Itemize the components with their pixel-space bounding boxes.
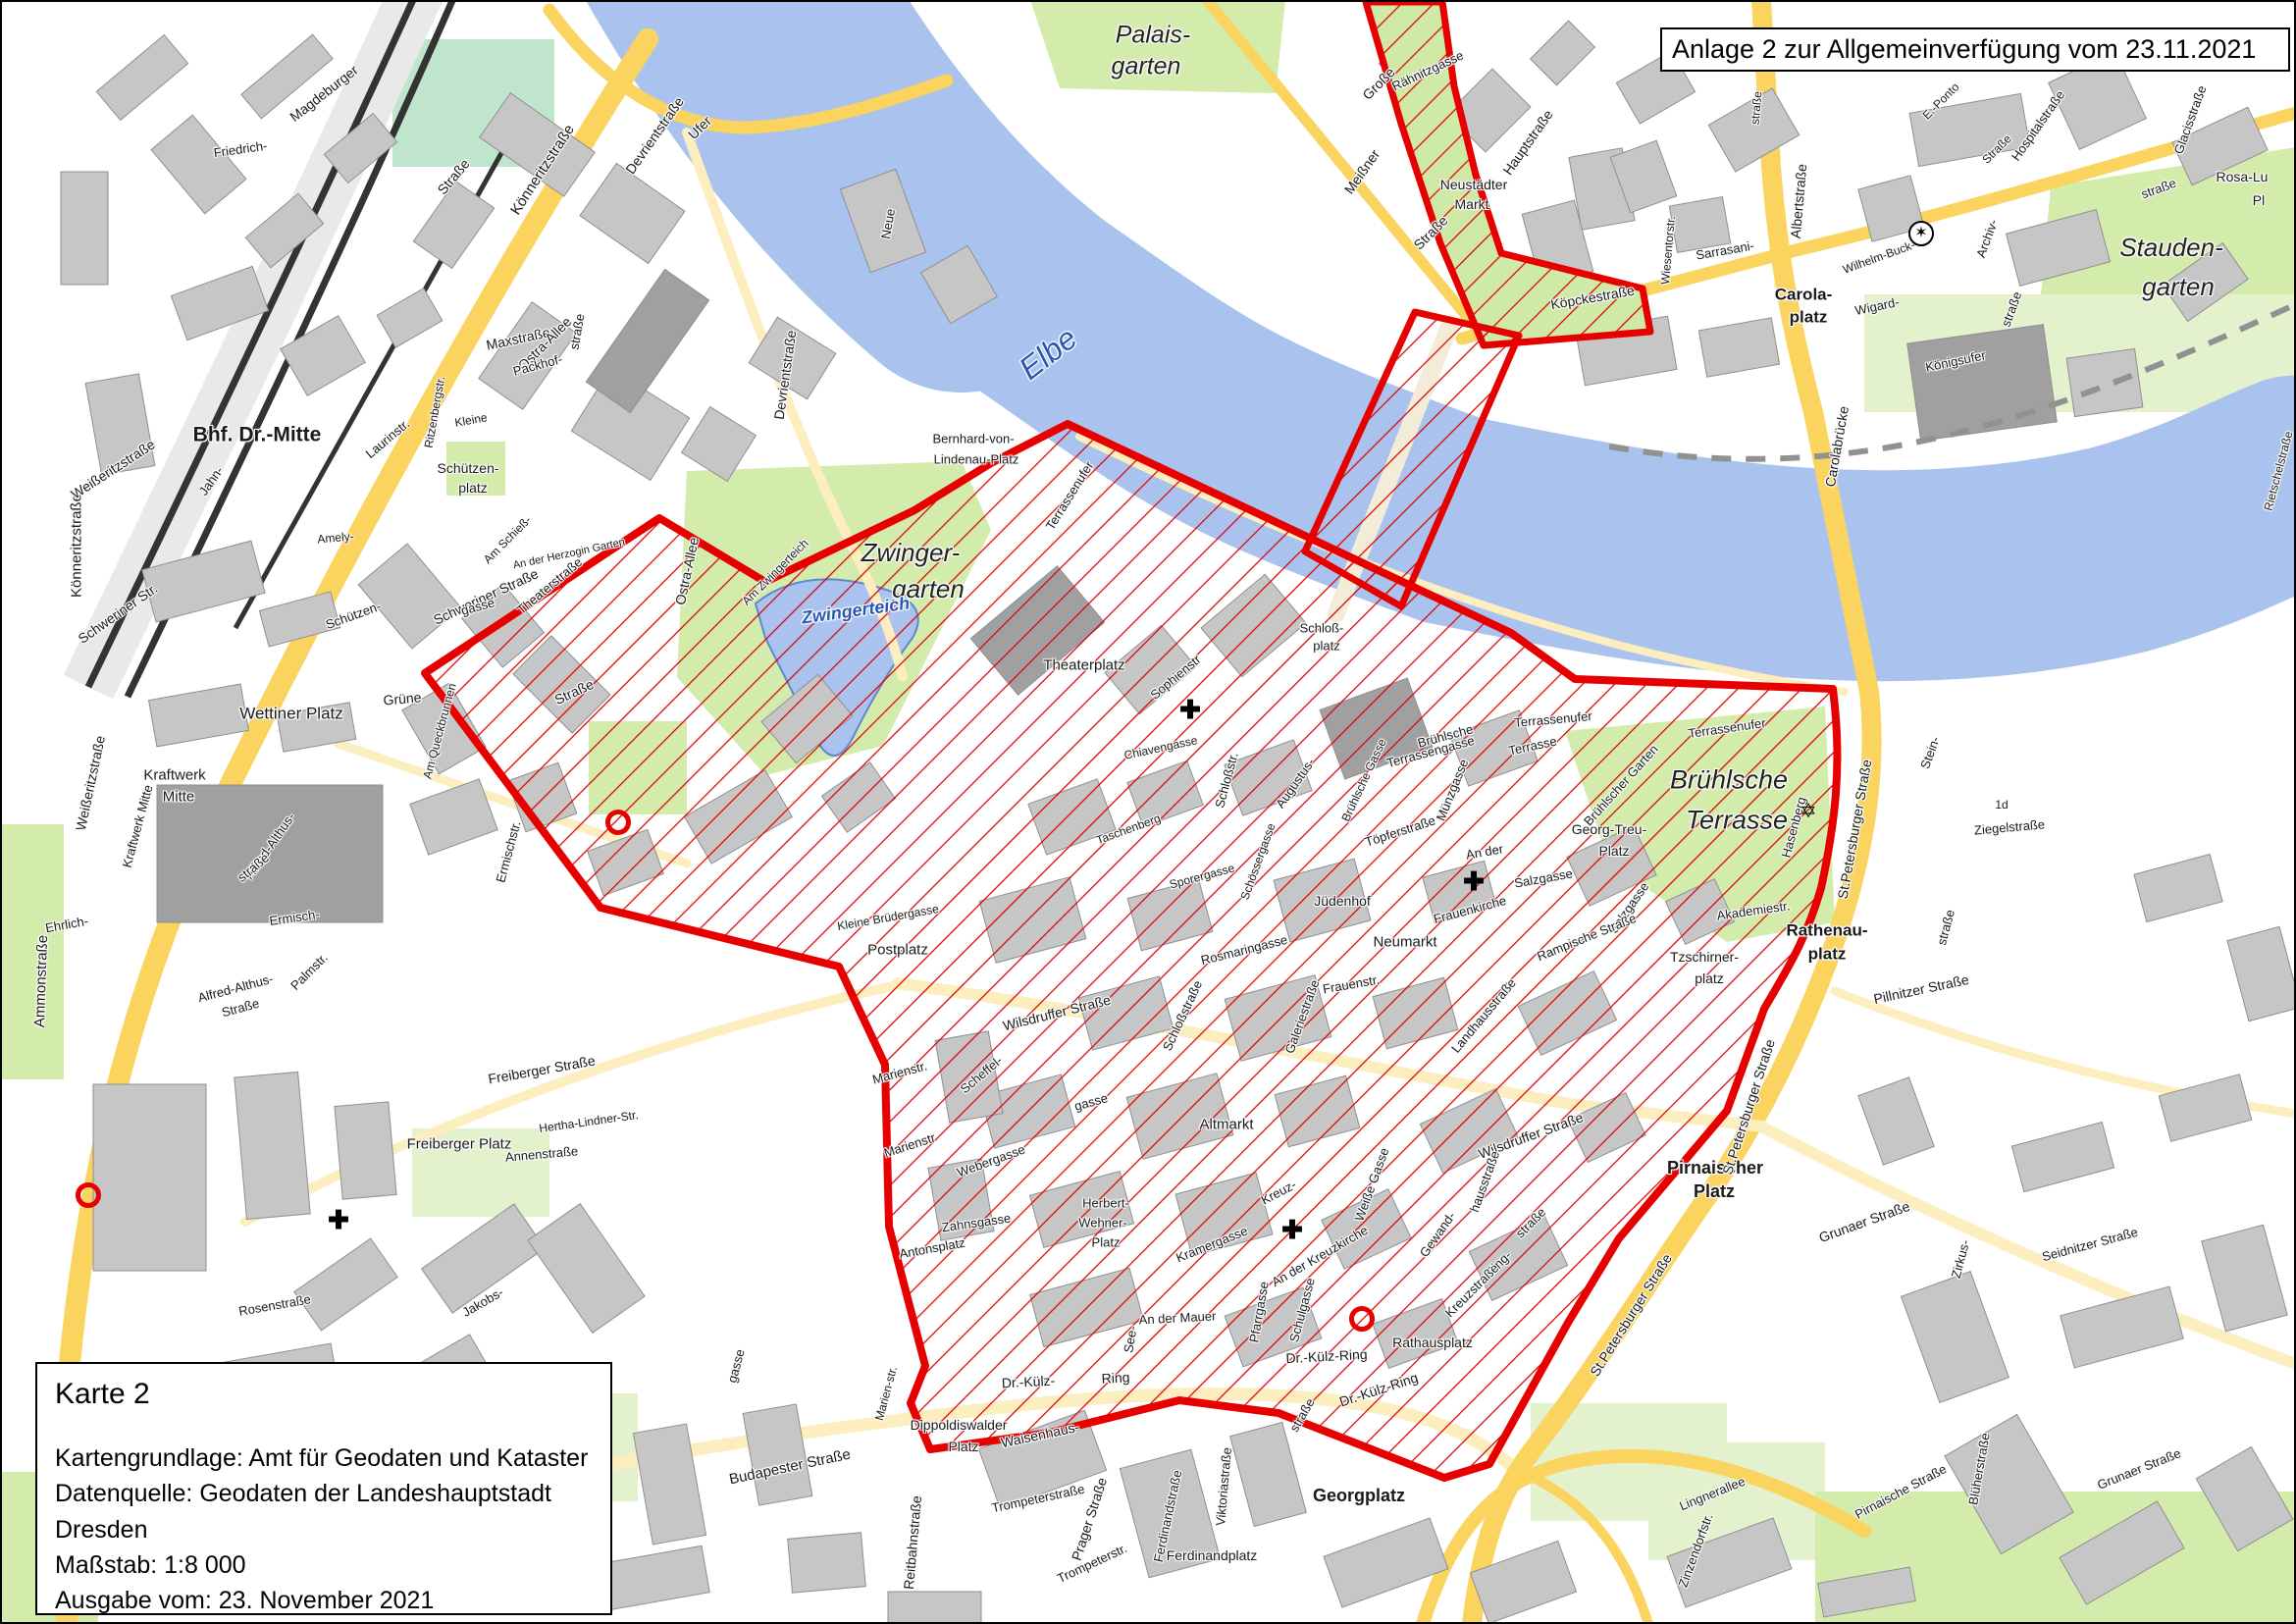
map-label: St.Petersburger Straße: [1836, 759, 1874, 900]
map-label: Am Zwingerteich: [740, 537, 810, 607]
map-label: Amely-: [317, 530, 354, 545]
map-label: Meißner: [1342, 147, 1383, 196]
map-label: Rathausplatz: [1392, 1336, 1473, 1349]
map-label: Am Queckbrunnen: [421, 682, 457, 780]
map-label: Dr.-Külz-Ring: [1337, 1370, 1420, 1408]
red-circle-marker: [76, 1182, 101, 1208]
map-label: platz: [1695, 971, 1724, 985]
map-label: Chiavengasse: [1123, 734, 1199, 761]
map-label: Hauptstraße: [1500, 107, 1555, 177]
map-label: Palais-: [1116, 24, 1190, 48]
map-label: garten: [2142, 274, 2215, 299]
map-label: Bernhard-von-: [932, 433, 1014, 445]
map-label: Ermisch-: [269, 908, 321, 927]
map-label: gasse: [1073, 1091, 1110, 1113]
map-label: Ehrlich-: [44, 915, 89, 934]
map-label: Weißeritzstraße: [74, 734, 107, 831]
map-label: Taschenberg: [1095, 812, 1163, 847]
map-label: Seidnitzer Straße: [2041, 1226, 2139, 1264]
info-line: Maßstab: 1:8 000: [55, 1547, 593, 1583]
map-label: Schössergasse: [1238, 821, 1277, 901]
map-label: Theaterplatz: [1043, 658, 1124, 673]
map-label: Hospitalstraße: [2009, 88, 2067, 163]
map-label: Salzgasse: [1513, 866, 1573, 889]
map-label: Waisenhaus-: [1000, 1420, 1080, 1450]
map-label: Jüdenhof: [1314, 894, 1371, 908]
map-label: Neustädter: [1440, 178, 1507, 191]
map-label: Alfred-Althus-: [196, 972, 274, 1005]
map-label: Wilsdruffer Straße: [1002, 993, 1113, 1033]
map-label: Pfarrgasse: [1247, 1281, 1271, 1343]
map-label: Wettiner Platz: [239, 706, 343, 722]
map-label: Augustus-: [1274, 756, 1317, 810]
map-label: Zwingerteich: [801, 594, 911, 626]
map-label: garten: [1112, 55, 1181, 79]
map-info-lines: Kartengrundlage: Amt für Geodaten und Ka…: [55, 1441, 593, 1618]
map-label: An der: [1465, 842, 1504, 861]
map-label: Antonsplatz: [898, 1236, 965, 1261]
red-circle-marker: [1349, 1306, 1375, 1332]
map-label: Kreuzstraße: [1442, 1261, 1500, 1319]
map-label: Bhf. Dr.-Mitte: [193, 425, 322, 445]
map-label: Zinzendorfstr.: [1676, 1512, 1714, 1589]
map-label: Neue: [879, 208, 897, 240]
map-label: Zirkus-: [1950, 1238, 1972, 1280]
map-label: See-: [1122, 1325, 1139, 1353]
map-label: Frauenkirche: [1433, 894, 1508, 925]
map-label: Ziegelstraße: [1973, 817, 2045, 836]
map-label: Sarrasani-: [1695, 238, 1754, 261]
map-label: Platz: [948, 1440, 978, 1453]
map-label: Dr.-Külz-Ring: [1285, 1347, 1368, 1365]
map-label: Münzgasse: [1435, 758, 1471, 823]
map-label: Devrientstraße: [623, 94, 686, 176]
map-label: Grunaer Straße: [2096, 1446, 2183, 1492]
map-label: Kleine Brüdergasse: [836, 903, 939, 932]
map-label: Schützen-: [324, 600, 382, 631]
map-label: Köpckestraße: [1549, 284, 1635, 312]
map-label: Platz: [1092, 1236, 1121, 1249]
map-label: Elbe: [1014, 322, 1082, 386]
map-info-heading: Karte 2: [55, 1378, 593, 1411]
map-label: Dippoldiswalder: [911, 1418, 1008, 1432]
map-label: Sporergasse: [1169, 862, 1236, 890]
map-label: Platz: [1598, 844, 1629, 858]
map-label: Brühlsche: [1670, 767, 1788, 794]
map-info-box: Karte 2 Kartengrundlage: Amt für Geodate…: [35, 1362, 612, 1615]
map-label: Lindenau-Platz: [934, 453, 1019, 466]
map-label: Pl: [2253, 193, 2265, 207]
map-label: Neumarkt: [1373, 935, 1436, 950]
map-label: Brühlscher Garten: [1582, 742, 1660, 827]
map-label: Scheffel-: [958, 1054, 1004, 1096]
map-label: Straße: [435, 156, 472, 196]
map-label: 1d: [1995, 799, 2008, 811]
map-label: Terrassenufer: [1043, 459, 1095, 532]
map-label: Lingnerallee: [1678, 1475, 1748, 1513]
map-label: Schweriner Str.: [76, 581, 160, 646]
map-label: Schloßstr.: [1213, 751, 1240, 809]
map-label: Freiberger Straße: [487, 1054, 596, 1086]
map-label: Friedrich-: [213, 139, 268, 160]
map-label: straße: [1749, 91, 1764, 126]
map-label: Könneritzstraße: [70, 494, 84, 598]
map-label: Rampische Straße: [1536, 912, 1639, 963]
map-label: Archiv-: [1974, 218, 2000, 259]
church-cross-icon: ✚: [1179, 697, 1201, 722]
map-label: Mitte: [163, 790, 195, 805]
map-label: Terrasse: [1686, 808, 1788, 834]
map-label: platz: [1790, 309, 1828, 326]
map-label: Ring: [1101, 1370, 1129, 1385]
map-label: straße: [567, 313, 586, 351]
map-label: Pillnitzer Straße: [1872, 972, 1970, 1006]
map-label: Kramergasse: [1174, 1224, 1250, 1264]
info-line: Kartengrundlage: Amt für Geodaten und Ka…: [55, 1441, 593, 1476]
map-label: straße: [1935, 909, 1957, 947]
map-label: Straße: [220, 997, 260, 1020]
map-label: hausstraße: [1468, 1149, 1501, 1214]
map-label: Wilhelm-Buck-: [1842, 238, 1917, 276]
map-label: Töpferstraße: [1364, 813, 1437, 848]
map-label: Schützen-: [437, 461, 498, 475]
map-label: Trompeterstr.: [1055, 1542, 1128, 1585]
map-label: Zahnsgasse: [941, 1212, 1012, 1234]
map-label: Rathenau-: [1786, 922, 1867, 939]
map-label: Akademiestr.: [1716, 899, 1791, 921]
map-label: St.Petersburger Straße: [1588, 1251, 1674, 1378]
map-label: Magdeburger: [287, 63, 360, 124]
map-label: Ostra-Allee: [673, 536, 701, 605]
map-label: Stauden-: [2119, 235, 2223, 260]
map-label: platz: [1313, 640, 1339, 653]
map-label: Frauenstr.: [1322, 973, 1381, 996]
map-label: Straße: [552, 677, 596, 707]
map-label: Platz: [1694, 1182, 1735, 1200]
map-label: Laurinstr.: [363, 417, 411, 460]
map-label: straße: [2139, 177, 2177, 201]
map-label: Kreuz-: [1259, 1178, 1298, 1206]
map-label: Straße: [1980, 132, 2013, 166]
map-label: Terrassenufer: [1688, 716, 1767, 740]
map-label: Dr.-Külz-: [1001, 1374, 1055, 1390]
map-label: Gewand-: [1418, 1210, 1458, 1260]
map-label: Pirnaische Straße: [1852, 1462, 1948, 1521]
map-label: Zwinger-: [861, 540, 961, 565]
map-label: Jakobs-: [460, 1285, 505, 1319]
map-label: Postplatz: [867, 943, 928, 958]
map-label: Rosmaringasse: [1200, 933, 1289, 967]
map-label: Albertstraße: [1789, 163, 1809, 238]
map-label: Ritzenbergstr.: [423, 375, 447, 448]
map-label: Carola-: [1775, 287, 1833, 303]
map-label: gasse: [725, 1348, 747, 1385]
map-label: Stein-: [1918, 735, 1942, 770]
church-cross-icon: ✚: [328, 1207, 349, 1232]
map-label: Freiberger Platz: [407, 1137, 512, 1152]
map-label: straße: [1287, 1396, 1317, 1434]
map-label: Brühlsche Gasse: [1339, 737, 1387, 823]
map-label: Schulgasse: [1287, 1277, 1317, 1343]
map-label: Königsufer: [1924, 348, 1987, 374]
map-label: Carolabrücke: [1823, 405, 1851, 488]
map-label: Ammonstraße: [32, 935, 50, 1028]
map-label: Jahn-: [196, 464, 225, 498]
map-label: Blüherstraße: [1966, 1432, 1992, 1506]
map-label: Straße: [1411, 213, 1450, 252]
map-label: Landhausstraße: [1449, 976, 1518, 1055]
map-label: An der Mauer: [1138, 1309, 1216, 1326]
annotation-title: Anlage 2 zur Allgemeinverfügung vom 23.1…: [1672, 34, 2256, 64]
map-label: Markt: [1455, 197, 1489, 211]
map-label: Annenstraße: [504, 1144, 578, 1163]
red-circle-marker: [605, 810, 631, 835]
map-label: Rosa-Lu: [2217, 170, 2269, 183]
map-label: St.Petersburger Straße: [1720, 1037, 1777, 1176]
map-label: Glacisstraße: [2171, 83, 2208, 155]
map-label: Georg-Treu-: [1572, 822, 1647, 836]
map-label: Könneritzstraße: [508, 123, 577, 218]
map-label: Rähnitzgasse: [1390, 48, 1466, 92]
map-label: Hertha-Lindner-Str.: [539, 1109, 640, 1134]
map-label: E.-Ponto: [1920, 80, 1961, 122]
map-label: Webergasse: [956, 1142, 1027, 1179]
map-label: Kleine: [454, 411, 489, 429]
map-label: Marienstr.: [871, 1059, 928, 1085]
map-label: Rietschelstraße: [2262, 430, 2294, 512]
map-label: Ferdinandplatz: [1167, 1548, 1258, 1562]
map-label: Pirnaischer: [1667, 1159, 1763, 1177]
map-label: Trompeterstraße: [991, 1483, 1086, 1515]
synagogue-star-icon: ✡: [1800, 802, 1817, 821]
map-label: straße: [1513, 1205, 1547, 1239]
church-cross-icon: ✚: [1463, 868, 1485, 894]
map-label: Tzschirner-: [1670, 950, 1739, 964]
map-label: Weiße Gasse: [1352, 1146, 1390, 1223]
map-label: Terrasse: [1507, 734, 1557, 757]
map-label: Ermischstr.: [494, 819, 522, 883]
map-label: Wiesentorstr.: [1659, 216, 1677, 286]
map-label: Devrientstraße: [772, 330, 799, 421]
map-label: Georgplatz: [1313, 1487, 1405, 1504]
map-label: straße: [2000, 289, 2024, 328]
map-label: Palmstr.: [288, 951, 330, 992]
map-label: Wehner-: [1078, 1217, 1127, 1230]
map-label: Terrassenufer: [1514, 709, 1592, 729]
map-page: Palais-gartenZwinger-gartenZwingerteichB…: [0, 0, 2296, 1624]
map-label: Budapester Straße: [728, 1447, 852, 1488]
map-label: Kraftwerk: [143, 768, 205, 783]
info-line: Ausgabe vom: 23. November 2021: [55, 1583, 593, 1618]
map-label: Marien-str.: [873, 1365, 899, 1422]
map-label: Wigard-: [1853, 295, 1900, 317]
map-label: Herbert-: [1082, 1197, 1129, 1210]
map-label: Ufer: [686, 114, 714, 142]
map-label: Grüne: [383, 690, 422, 707]
map-label: Viktoriastraße: [1214, 1447, 1233, 1527]
annotation-title-box: Anlage 2 zur Allgemeinverfügung vom 23.1…: [1660, 27, 2290, 72]
map-label: Reitbahnstraße: [902, 1495, 923, 1591]
map-label: Schloß-: [1300, 622, 1344, 635]
map-label: Marienstr: [882, 1130, 937, 1159]
map-label: Altmarkt: [1199, 1118, 1253, 1132]
map-label: platz: [1808, 946, 1847, 963]
map-label: Grunaer Straße: [1817, 1199, 1911, 1244]
map-label: Rosenstraße: [237, 1292, 312, 1318]
info-line: Datenquelle: Geodaten der Landeshauptsta…: [55, 1476, 593, 1547]
map-label: platz: [458, 481, 488, 495]
landmark-star-icon: ✶: [1908, 221, 1934, 246]
map-label: Kraftwerk Mitte: [121, 783, 155, 868]
church-cross-icon: ✚: [1281, 1217, 1303, 1242]
map-label: Weißeritzstraße: [69, 437, 157, 500]
map-label: Schloßstraße: [1161, 978, 1204, 1053]
map-label: Galeriestraße: [1282, 978, 1321, 1055]
